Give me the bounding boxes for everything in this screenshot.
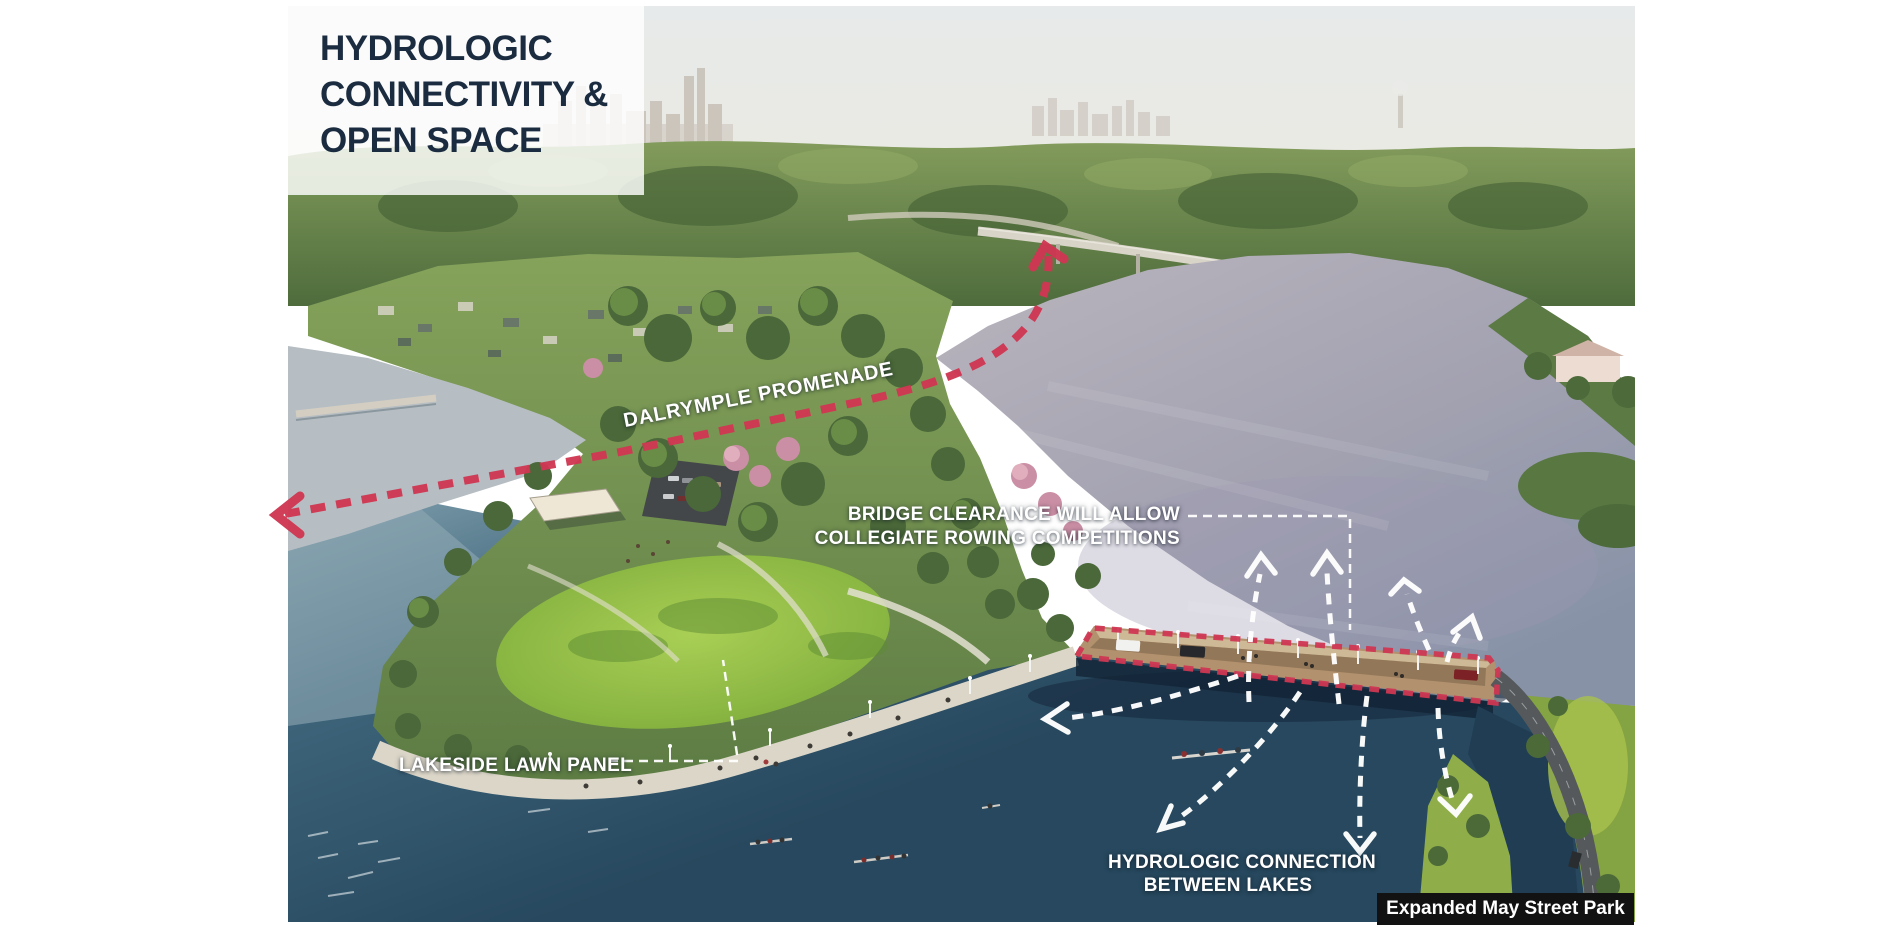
slide: HYDROLOGIC CONNECTIVITY & OPEN SPACE DAL… <box>0 0 1900 927</box>
estate-house <box>1556 354 1620 382</box>
bridge-clearance-line-2: COLLEGIATE ROWING COMPETITIONS <box>815 527 1180 551</box>
lakeside-lawn-label: LAKESIDE LAWN PANEL <box>399 755 632 777</box>
hydrologic-connection-label: HYDROLOGIC CONNECTION BETWEEN LAKES <box>1108 851 1348 897</box>
hydrologic-line-2: BETWEEN LAKES <box>1108 874 1348 897</box>
title-line-2: CONNECTIVITY & <box>320 72 626 118</box>
hydrologic-line-1: HYDROLOGIC CONNECTION <box>1108 851 1348 874</box>
title-line-3: OPEN SPACE <box>320 118 626 164</box>
title-card: HYDROLOGIC CONNECTIVITY & OPEN SPACE <box>288 6 644 195</box>
image-caption: Expanded May Street Park <box>1377 893 1634 925</box>
bridge-clearance-line-1: BRIDGE CLEARANCE WILL ALLOW <box>815 503 1180 527</box>
title-line-1: HYDROLOGIC <box>320 26 626 72</box>
bridge-clearance-label: BRIDGE CLEARANCE WILL ALLOW COLLEGIATE R… <box>815 503 1180 551</box>
